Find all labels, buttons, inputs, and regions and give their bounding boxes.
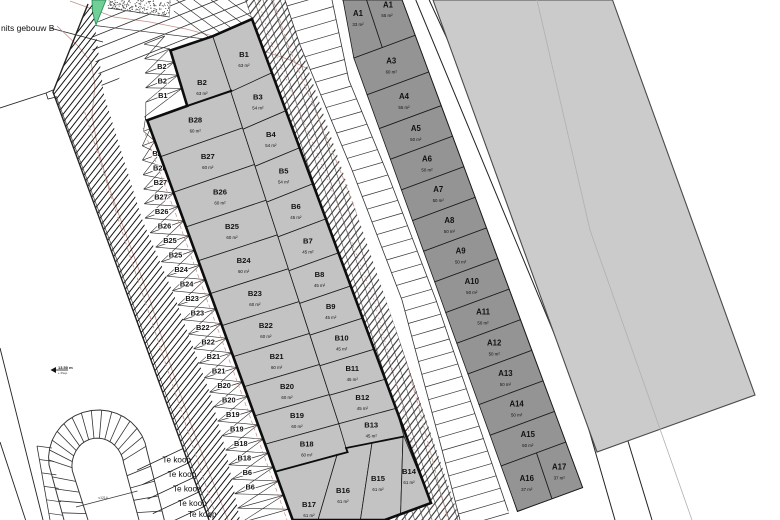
svg-text:45 m²: 45 m² <box>336 347 348 352</box>
svg-text:60 m²: 60 m² <box>301 452 313 457</box>
svg-text:A8: A8 <box>444 216 455 225</box>
svg-text:B19: B19 <box>226 410 240 419</box>
svg-text:60 m²: 60 m² <box>214 201 226 206</box>
svg-text:45 m²: 45 m² <box>347 377 359 382</box>
svg-text:45 m²: 45 m² <box>325 315 337 320</box>
svg-text:50 m²: 50 m² <box>455 260 467 265</box>
svg-text:60 m²: 60 m² <box>249 302 261 307</box>
svg-text:B9: B9 <box>326 302 336 311</box>
svg-text:B21: B21 <box>212 367 226 376</box>
svg-text:37 m²: 37 m² <box>554 475 566 480</box>
svg-text:A7: A7 <box>433 185 443 194</box>
svg-text:50 m²: 50 m² <box>433 198 445 203</box>
svg-text:nits gebouw B: nits gebouw B <box>1 23 55 33</box>
svg-text:B27: B27 <box>154 193 168 202</box>
svg-text:v1214: v1214 <box>98 496 107 500</box>
svg-text:B6: B6 <box>291 202 301 211</box>
svg-text:B11: B11 <box>345 364 359 373</box>
svg-text:54 m²: 54 m² <box>278 180 290 185</box>
svg-text:B4: B4 <box>266 130 276 139</box>
svg-text:61 m²: 61 m² <box>337 499 349 504</box>
svg-text:63 m²: 63 m² <box>196 91 208 96</box>
svg-text:60 m²: 60 m² <box>226 235 238 240</box>
svg-text:60 m²: 60 m² <box>386 70 398 75</box>
svg-text:A6: A6 <box>422 155 433 164</box>
svg-text:B25: B25 <box>225 222 240 231</box>
svg-text:A16: A16 <box>520 474 535 483</box>
svg-text:B22: B22 <box>201 338 215 347</box>
svg-text:60 m²: 60 m² <box>271 365 283 370</box>
svg-text:B23: B23 <box>191 309 205 318</box>
svg-text:33 m²: 33 m² <box>352 22 364 27</box>
svg-text:B26: B26 <box>158 222 172 231</box>
svg-text:B25: B25 <box>163 236 177 245</box>
svg-text:B25: B25 <box>169 251 183 260</box>
svg-text:B15: B15 <box>371 474 386 483</box>
svg-text:50 m²: 50 m² <box>477 321 489 326</box>
svg-text:A12: A12 <box>487 338 502 347</box>
svg-text:A1: A1 <box>383 1 394 10</box>
svg-text:37 m²: 37 m² <box>521 487 533 492</box>
svg-text:A3: A3 <box>386 57 397 66</box>
svg-text:B5: B5 <box>279 167 289 176</box>
svg-text:55 m²: 55 m² <box>381 13 393 18</box>
svg-text:B18: B18 <box>300 439 314 448</box>
svg-text:B20: B20 <box>280 382 294 391</box>
svg-text:50 m²: 50 m² <box>522 443 534 448</box>
svg-text:B27: B27 <box>201 152 215 161</box>
svg-text:B6: B6 <box>245 483 254 492</box>
svg-text:B22: B22 <box>196 323 210 332</box>
svg-text:A14: A14 <box>509 400 524 409</box>
svg-text:B14: B14 <box>402 467 417 476</box>
svg-text:B10: B10 <box>335 334 349 343</box>
svg-text:A17: A17 <box>552 462 566 471</box>
svg-text:50 m²: 50 m² <box>511 413 523 418</box>
svg-text:50 m²: 50 m² <box>444 229 456 234</box>
svg-text:54 m²: 54 m² <box>265 143 277 148</box>
svg-text:B26: B26 <box>213 188 227 197</box>
svg-text:B19: B19 <box>290 411 304 420</box>
svg-text:A13: A13 <box>498 369 513 378</box>
svg-text:B17: B17 <box>302 500 316 509</box>
svg-text:60 m²: 60 m² <box>202 165 214 170</box>
svg-text:50 m²: 50 m² <box>489 351 501 356</box>
svg-text:54 m²: 54 m² <box>252 106 264 111</box>
svg-text:61 m²: 61 m² <box>303 513 315 518</box>
svg-text:A9: A9 <box>456 247 467 256</box>
svg-text:50 m²: 50 m² <box>410 137 422 142</box>
svg-text:60 m²: 60 m² <box>281 395 293 400</box>
svg-text:B2: B2 <box>158 77 167 86</box>
svg-text:B6: B6 <box>243 468 252 477</box>
svg-text:B23: B23 <box>185 294 199 303</box>
svg-text:45 m²: 45 m² <box>314 283 326 288</box>
svg-text:B24: B24 <box>180 280 194 289</box>
svg-text:B1: B1 <box>239 50 249 59</box>
svg-text:50 m²: 50 m² <box>500 382 512 387</box>
svg-text:B2: B2 <box>197 78 207 87</box>
svg-text:B24: B24 <box>237 256 252 265</box>
svg-text:61 m²: 61 m² <box>403 480 415 485</box>
svg-text:61 m²: 61 m² <box>372 487 384 492</box>
svg-text:B21: B21 <box>207 352 221 361</box>
svg-text:45 m²: 45 m² <box>357 406 369 411</box>
svg-text:B1: B1 <box>158 91 167 100</box>
svg-text:55 m²: 55 m² <box>398 105 410 110</box>
svg-text:B12: B12 <box>355 393 369 402</box>
svg-text:B18: B18 <box>238 454 252 463</box>
svg-text:50 m²: 50 m² <box>466 290 478 295</box>
svg-text:B16: B16 <box>336 486 350 495</box>
svg-text:B7: B7 <box>303 236 313 245</box>
svg-text:60 m²: 60 m² <box>190 128 202 133</box>
svg-text:60 m²: 60 m² <box>291 424 303 429</box>
svg-text:B22: B22 <box>259 321 273 330</box>
svg-text:50 m²: 50 m² <box>421 168 433 173</box>
svg-text:A15: A15 <box>521 430 536 439</box>
svg-text:B3: B3 <box>253 93 263 102</box>
svg-text:A1: A1 <box>353 9 364 18</box>
svg-text:A11: A11 <box>476 308 491 317</box>
svg-text:B26: B26 <box>155 207 169 216</box>
svg-text:B2: B2 <box>157 62 166 71</box>
svg-text:B19: B19 <box>230 425 244 434</box>
svg-text:B20: B20 <box>222 396 236 405</box>
svg-text:45 m²: 45 m² <box>302 249 314 254</box>
svg-text:60 m²: 60 m² <box>238 269 250 274</box>
svg-text:B28: B28 <box>188 115 202 124</box>
svg-text:B20: B20 <box>217 381 231 390</box>
svg-text:45 m²: 45 m² <box>366 434 378 439</box>
svg-text:13.50 m: 13.50 m <box>58 365 73 370</box>
svg-text:B13: B13 <box>364 421 378 430</box>
svg-text:B21: B21 <box>270 352 285 361</box>
svg-text:A10: A10 <box>465 277 480 286</box>
svg-text:B8: B8 <box>315 270 325 279</box>
svg-text:A5: A5 <box>411 124 422 133</box>
svg-text:+ P.a.p.: + P.a.p. <box>58 371 68 375</box>
svg-text:B23: B23 <box>248 289 262 298</box>
svg-text:60 m²: 60 m² <box>260 334 272 339</box>
svg-text:B18: B18 <box>234 439 248 448</box>
svg-text:A4: A4 <box>399 92 410 101</box>
svg-text:63 m²: 63 m² <box>238 63 250 68</box>
svg-text:B24: B24 <box>174 265 188 274</box>
svg-text:Te koop: Te koop <box>188 510 217 519</box>
svg-text:45 m²: 45 m² <box>290 215 302 220</box>
